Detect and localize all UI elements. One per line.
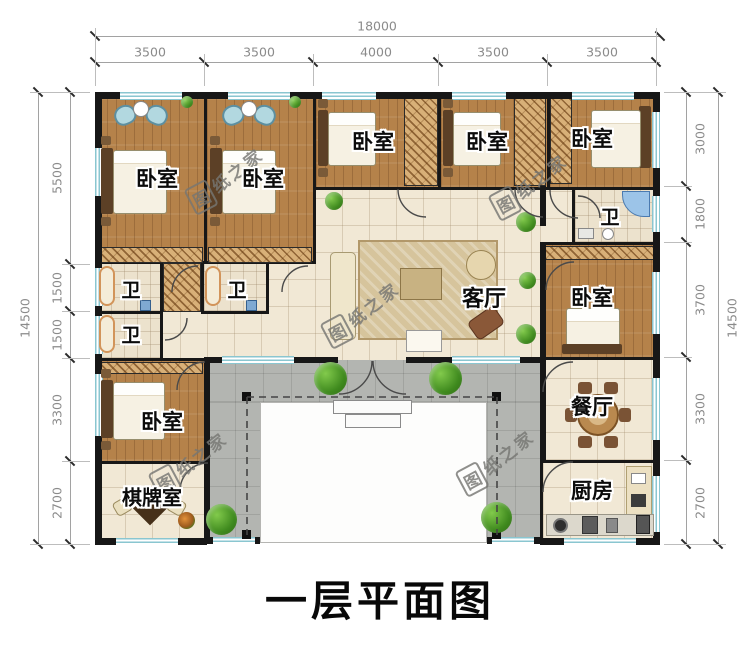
dim-left-seg: 5500: [50, 162, 65, 194]
dim-top-seg: 4000: [360, 45, 392, 60]
bathtub: [205, 266, 221, 306]
dim-ext: [547, 54, 548, 86]
kitchen-sink: [631, 473, 646, 484]
page-title: 一层平面图: [265, 568, 495, 629]
dim-left-seg: 1500: [50, 272, 65, 304]
dim-top-seg: 3500: [243, 45, 275, 60]
closet-hatch: [163, 263, 201, 312]
room-label-kitchen: 厨房: [571, 475, 613, 505]
entry-step: [345, 414, 401, 428]
window: [116, 538, 178, 545]
chair: [578, 436, 592, 448]
coffee-table: [400, 268, 442, 300]
dim-ext: [664, 92, 726, 93]
room-label-bath-a: 卫: [121, 276, 140, 303]
dim-right-total: 14500: [725, 298, 740, 338]
column: [492, 392, 501, 401]
window: [452, 356, 520, 364]
dim-left-seg: 3300: [50, 394, 65, 426]
window: [564, 538, 636, 545]
nightstand: [443, 99, 453, 108]
round-table: [133, 101, 149, 117]
dim-right-seg: 3300: [693, 393, 708, 425]
bathtub: [99, 266, 115, 306]
dim-line-right-segments: [686, 92, 687, 544]
room-label-bedroom-f: 卧室: [571, 282, 613, 312]
dim-line-right-total: [718, 92, 719, 544]
plant: [519, 272, 536, 289]
window: [652, 196, 660, 232]
nightstand: [101, 441, 111, 450]
bed-headboard: [562, 344, 622, 354]
dim-top-seg: 3500: [477, 45, 509, 60]
room-label-bedroom-a: 卧室: [136, 163, 178, 193]
dim-ext: [62, 311, 90, 312]
room-label-bedroom-d: 卧室: [466, 126, 508, 156]
closet-hatch: [544, 246, 656, 260]
dim-ext: [438, 54, 439, 86]
bush: [314, 362, 347, 395]
nightstand: [101, 136, 111, 145]
room-label-living: 客厅: [462, 281, 506, 313]
fridge: [636, 515, 650, 534]
bed-headboard: [443, 110, 453, 166]
window: [652, 272, 660, 334]
chair: [604, 436, 618, 448]
dim-ext: [313, 54, 314, 86]
closet-hatch: [404, 96, 438, 186]
window: [652, 112, 660, 168]
plant: [516, 324, 536, 344]
nightstand: [101, 217, 111, 226]
dim-line-top-total: [95, 36, 660, 37]
flower-pot: [178, 512, 195, 529]
washer: [140, 300, 151, 311]
dim-left-total: 14500: [18, 298, 33, 338]
nightstand: [101, 369, 111, 378]
dim-ext: [664, 357, 692, 358]
nightstand: [210, 136, 220, 145]
nightstand: [443, 168, 453, 177]
window: [120, 92, 182, 100]
room-label-bedroom-c: 卧室: [352, 126, 394, 156]
appliance: [606, 518, 618, 533]
closet-hatch: [99, 247, 203, 263]
bush: [429, 362, 462, 395]
nightstand: [318, 99, 328, 108]
entry-step: [333, 400, 412, 414]
toilet: [602, 228, 614, 240]
bed-headboard: [101, 380, 113, 438]
round-table: [241, 101, 257, 117]
dim-top-total: 18000: [357, 19, 397, 34]
dim-ext: [62, 264, 90, 265]
room-label-bath-c: 卫: [121, 321, 140, 348]
room-label-bath-e: 卫: [600, 203, 619, 230]
room-label-bath-b: 卫: [227, 276, 246, 303]
nightstand: [318, 168, 328, 177]
bush: [206, 504, 237, 535]
dim-top-seg: 3500: [586, 45, 618, 60]
sink: [578, 228, 594, 239]
chair: [619, 408, 631, 422]
dim-ext: [62, 461, 90, 462]
dim-line-top-segments: [95, 62, 660, 63]
plant: [289, 96, 301, 108]
room-label-bedroom-b: 卧室: [242, 163, 284, 193]
plant: [516, 212, 536, 232]
dim-line-left-total: [38, 92, 39, 544]
tv-stand: [406, 330, 442, 352]
plant: [325, 192, 343, 210]
bush: [481, 502, 512, 533]
dim-ext: [664, 544, 726, 545]
dim-ext: [664, 242, 692, 243]
dim-right-seg: 3700: [693, 284, 708, 316]
dim-right-seg: 2700: [693, 487, 708, 519]
dim-right-seg: 3000: [693, 123, 708, 155]
window: [652, 378, 660, 440]
window: [572, 92, 634, 100]
plant: [181, 96, 193, 108]
column: [242, 392, 251, 401]
room-label-chess: 棋牌室: [122, 482, 182, 511]
dim-right-seg: 1800: [693, 198, 708, 230]
column: [242, 530, 251, 539]
appliance: [582, 516, 598, 534]
window: [322, 92, 376, 100]
bed-headboard: [318, 110, 328, 166]
dim-ext: [62, 358, 90, 359]
wall-right-wing-inner: [540, 242, 546, 463]
dim-ext: [95, 28, 96, 86]
dim-left-seg: 2700: [50, 487, 65, 519]
dim-ext: [664, 460, 692, 461]
window: [222, 356, 294, 364]
dim-left-seg: 1500: [50, 319, 65, 351]
dim-ext: [664, 186, 692, 187]
bathtub: [99, 315, 115, 353]
dim-ext: [30, 92, 90, 93]
dim-ext: [656, 28, 657, 86]
closet-hatch: [208, 247, 312, 263]
cooker: [553, 518, 568, 533]
nightstand: [210, 217, 220, 226]
closet-hatch: [99, 362, 203, 374]
washer: [246, 300, 257, 311]
floor-plan: 图纸之家 图纸之家 图纸之家 图纸之家 图纸之家 卧室 卧室 卧室 卧室 卧室 …: [0, 0, 750, 646]
dim-ext: [204, 54, 205, 86]
dim-line-left-segments: [70, 92, 71, 544]
dim-ext: [30, 544, 90, 545]
room-label-bedroom-g: 卧室: [141, 406, 183, 436]
window: [228, 92, 290, 100]
room-label-dining: 餐厅: [571, 391, 613, 421]
room-label-bedroom-e: 卧室: [571, 123, 613, 153]
veranda-top: [207, 360, 540, 402]
stove: [631, 494, 646, 507]
side-table: [466, 250, 496, 280]
bed-headboard: [101, 148, 113, 214]
dim-top-seg: 3500: [134, 45, 166, 60]
window: [452, 92, 506, 100]
bed: [566, 308, 620, 348]
